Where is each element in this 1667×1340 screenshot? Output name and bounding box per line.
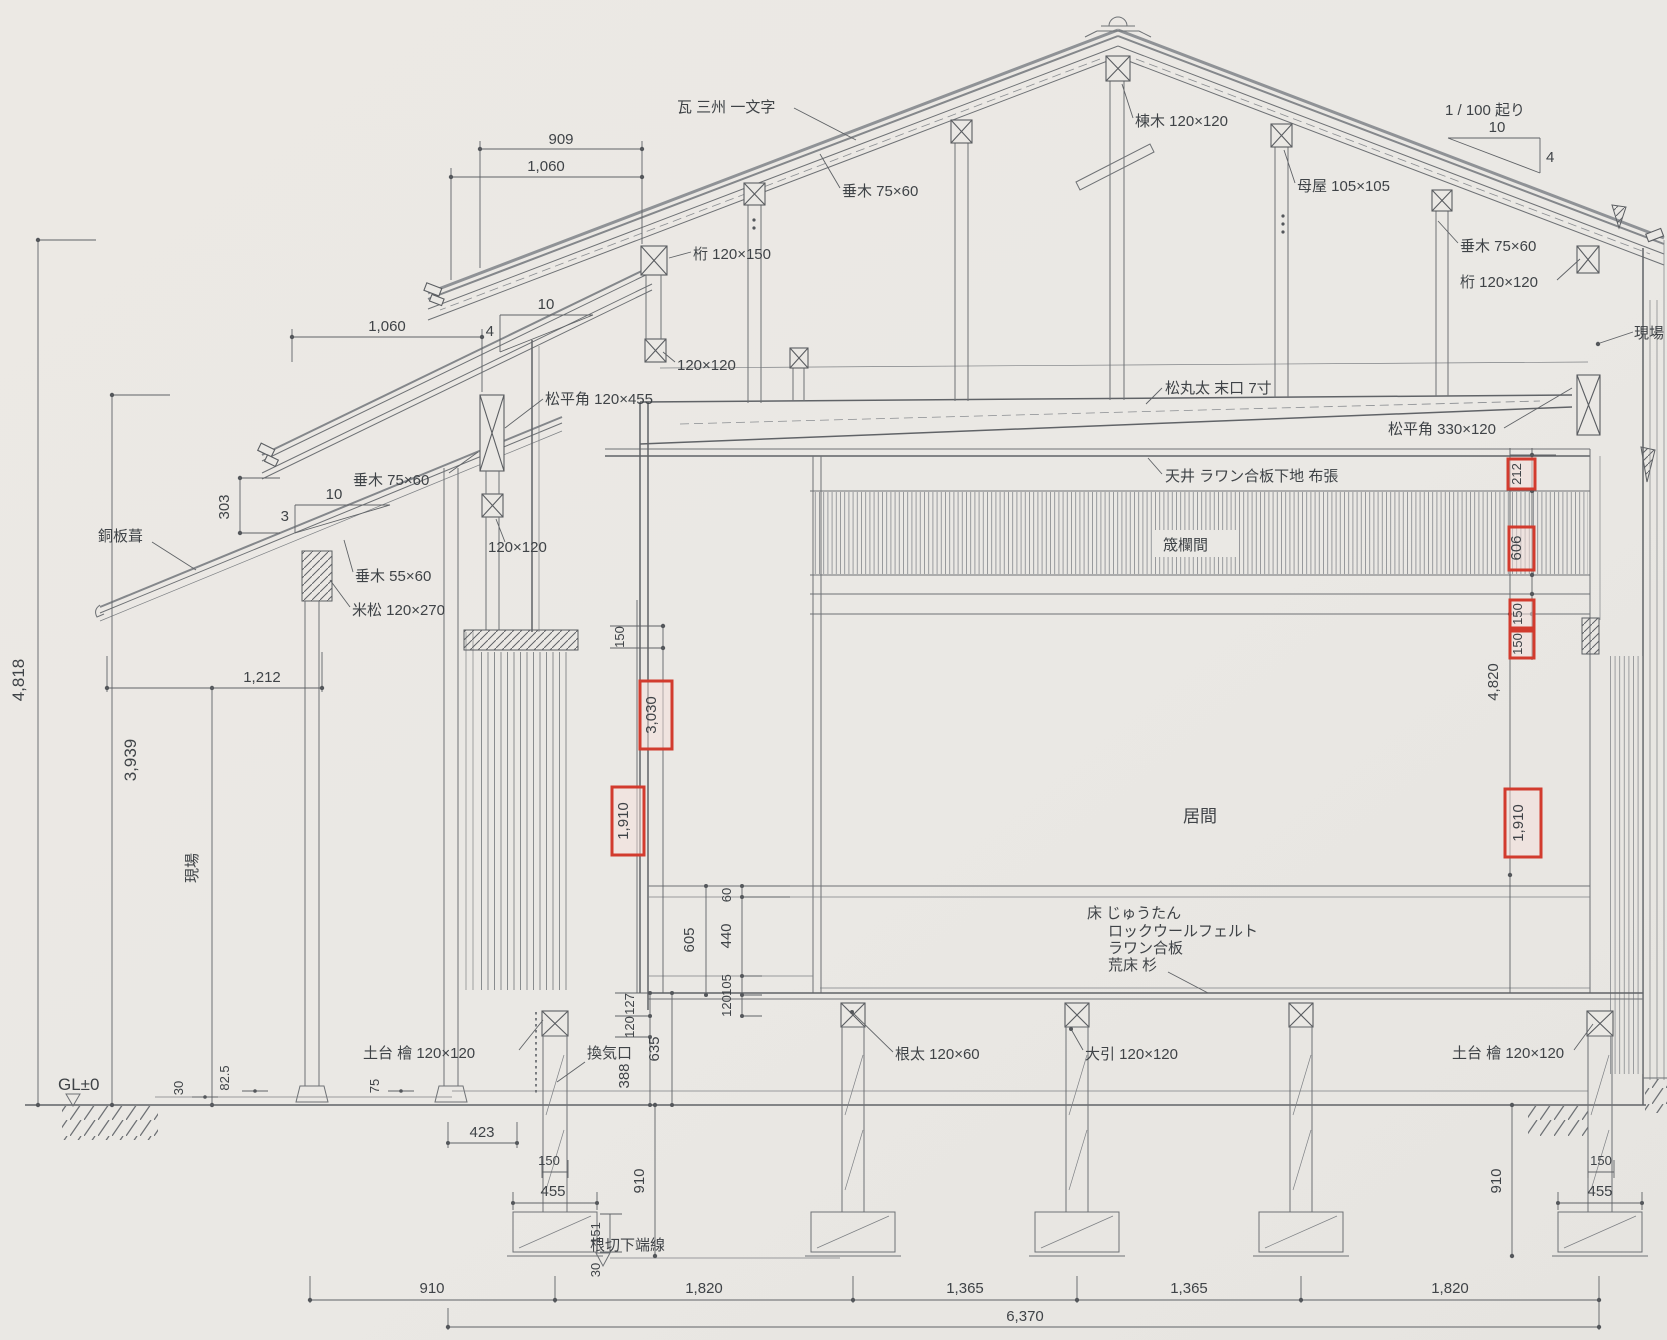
hdim-606: 606 — [1508, 535, 1525, 560]
label-roof-tile: 瓦 三州 一文字 — [677, 99, 775, 116]
dim-423: 423 — [469, 1124, 494, 1141]
dim-150-footing-left: 150 — [538, 1153, 560, 1168]
dim-120-left: 120 — [622, 1016, 637, 1038]
section-drawing: 瓦 三州 一文字 棟木 120×120 垂木 75×60 母屋 105×105 … — [0, 0, 1667, 1340]
label-transom: 筬欄間 — [1163, 536, 1208, 554]
label-rafter-mid-left: 垂木 75×60 — [353, 472, 429, 489]
lintel-hatched — [464, 630, 578, 650]
dim-1060-left: 1,060 — [368, 318, 406, 335]
label-purlin: 母屋 105×105 — [1297, 178, 1390, 195]
dim-910-left: 910 — [631, 1168, 648, 1193]
drawing-canvas: 瓦 三州 一文字 棟木 120×120 垂木 75×60 母屋 105×105 … — [0, 0, 1667, 1340]
dim-303: 303 — [216, 494, 233, 519]
dim-1060-top: 1,060 — [527, 158, 565, 175]
label-gl: GL±0 — [58, 1075, 99, 1094]
hdim-212: 212 — [1509, 463, 1524, 485]
dim-1212: 1,212 — [243, 669, 281, 686]
siding — [1609, 656, 1643, 1074]
kamoi-hatched — [1582, 618, 1599, 654]
dim-440: 440 — [718, 923, 735, 948]
dim-455-footing-right: 455 — [1587, 1183, 1612, 1200]
label-ridge-beam: 棟木 120×120 — [1135, 113, 1228, 130]
dim-910-bottom: 910 — [419, 1280, 444, 1297]
purlin-section — [1432, 190, 1452, 211]
hdim-3030: 3,030 — [643, 696, 660, 734]
dim-4818: 4,818 — [9, 659, 28, 702]
slope-rise-porch: 3 — [281, 508, 289, 525]
dim-1820-a: 1,820 — [685, 1280, 723, 1297]
label-camber-note: 1 / 100 起り — [1445, 102, 1525, 119]
dim-127: 127 — [622, 993, 637, 1015]
slope-run-left: 10 — [538, 296, 555, 313]
label-sill-right: 土台 檜 120×120 — [1452, 1044, 1564, 1062]
label-girder-right: 桁 120×120 — [1460, 274, 1538, 291]
label-120x120-roof: 120×120 — [677, 357, 736, 374]
slope-run-porch: 10 — [326, 486, 343, 503]
purlin-section — [744, 183, 765, 205]
dim-150-top: 150 — [612, 626, 627, 648]
dim-30-gl: 30 — [171, 1081, 186, 1095]
label-hirakaku-120x455: 松平角 120×455 — [545, 391, 653, 408]
dim-82-5: 82.5 — [217, 1065, 232, 1090]
label-rafter-55x60: 垂木 55×60 — [355, 568, 431, 585]
hirakaku-330x120-section — [1577, 375, 1600, 435]
dim-635: 635 — [646, 1036, 663, 1061]
dim-60: 60 — [719, 888, 734, 902]
label-floor-layer-1: 床 じゅうたん — [1087, 905, 1181, 922]
label-floor-layer-4: 荒床 杉 — [1108, 957, 1157, 974]
label-ceiling: 天井 ラワン合板下地 布張 — [1165, 467, 1338, 485]
label-girder-120x150: 桁 120×150 — [693, 246, 771, 263]
girder-120x150-section — [641, 246, 667, 275]
dim-388: 388 — [616, 1063, 633, 1088]
dim-909: 909 — [548, 131, 573, 148]
wall-post-120x120-section — [482, 494, 503, 517]
label-floor-layer-3: ラワン合板 — [1108, 939, 1183, 957]
label-site-right: 現場 — [1634, 325, 1664, 342]
label-copper-roof: 銅板葺 — [98, 527, 143, 545]
soil-hatch — [1645, 1079, 1667, 1113]
dim-150-footing-right: 150 — [1590, 1153, 1612, 1168]
dim-105: 105 — [719, 974, 734, 996]
dim-910-right: 910 — [1488, 1168, 1505, 1193]
slope-run-right: 10 — [1489, 119, 1506, 136]
hirakaku-120x455-section — [480, 395, 504, 471]
dim-455-footing-left: 455 — [540, 1183, 565, 1200]
label-rafter-top-left: 垂木 75×60 — [842, 183, 918, 200]
purlin-section — [1271, 124, 1292, 147]
door-panel — [480, 652, 572, 990]
dim-6370: 6,370 — [1006, 1308, 1044, 1325]
hdim-1910-left: 1,910 — [615, 802, 632, 840]
dim-30-footing: 30 — [588, 1263, 603, 1277]
label-sill-left: 土台 檜 120×120 — [363, 1044, 475, 1062]
purlin-section — [951, 120, 972, 143]
label-obiki: 大引 120×120 — [1085, 1046, 1178, 1063]
label-site-left: 現場 — [184, 853, 201, 883]
dim-1365-b: 1,365 — [1170, 1280, 1208, 1297]
dim-1820-b: 1,820 — [1431, 1280, 1469, 1297]
slope-rise-left: 4 — [486, 323, 494, 340]
dim-4820: 4,820 — [1485, 663, 1502, 701]
dim-75: 75 — [367, 1079, 382, 1093]
label-beimatsu: 米松 120×270 — [352, 602, 445, 619]
soil-hatch — [1528, 1106, 1588, 1136]
slope-rise-right: 4 — [1546, 149, 1554, 166]
hdim-1910-right: 1,910 — [1510, 804, 1527, 842]
label-hirakaku-330x120: 松平角 330×120 — [1388, 421, 1496, 438]
girder-120x120-section — [645, 339, 666, 362]
label-vent: 換気口 — [587, 1045, 632, 1062]
beimatsu-beam-section — [302, 551, 332, 601]
dim-3939: 3,939 — [121, 739, 140, 782]
girder-right-section — [1577, 246, 1599, 273]
label-joist: 根太 120×60 — [895, 1046, 980, 1063]
label-living-room: 居間 — [1183, 807, 1217, 826]
ridge-beam-section — [1106, 56, 1130, 81]
beam-section — [790, 348, 808, 368]
hdim-150-a: 150 — [1510, 603, 1525, 625]
dim-605: 605 — [681, 927, 698, 952]
dim-151: 151 — [588, 1222, 603, 1244]
dim-120-right: 120 — [719, 995, 734, 1017]
label-pine-log: 松丸太 末口 7寸 — [1165, 380, 1272, 397]
hdim-150-b: 150 — [1510, 633, 1525, 655]
label-rafter-right: 垂木 75×60 — [1460, 238, 1536, 255]
soil-hatch — [62, 1106, 158, 1140]
label-floor-layer-2: ロックウールフェルト — [1108, 923, 1258, 940]
dim-1365-a: 1,365 — [946, 1280, 984, 1297]
label-120x120-wall: 120×120 — [488, 539, 547, 556]
